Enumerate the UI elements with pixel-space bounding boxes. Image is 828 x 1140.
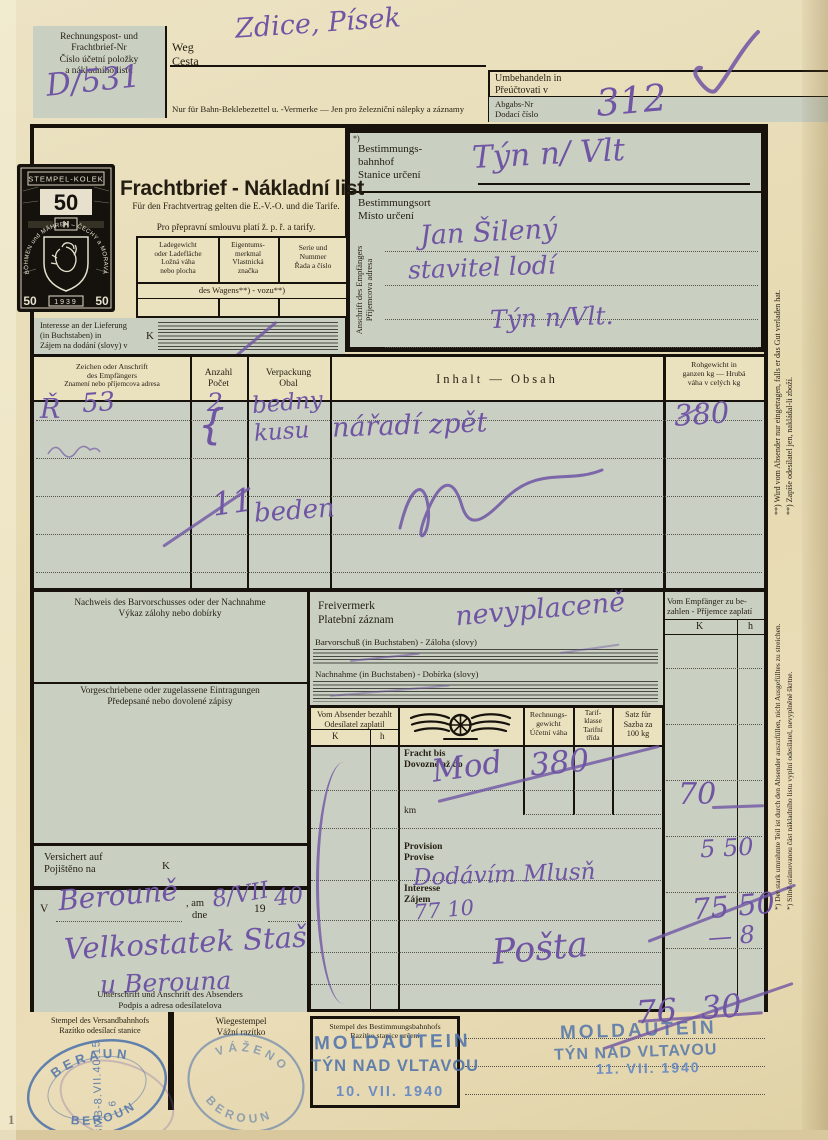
margin-footnote-upper: **) Wird vom Absender nur eingetragen, f… xyxy=(772,195,800,515)
zeichen-l1: Zeichen oder Anschrift xyxy=(36,362,188,371)
line xyxy=(663,634,764,635)
dotted-line xyxy=(385,347,758,348)
interesse-de1: Interesse an der Lieferung xyxy=(40,321,128,331)
consignee-label-cs: Příjemcova adresa xyxy=(364,229,374,351)
pay-h-header: h xyxy=(380,731,385,742)
moldautein-stamp2-date: 11. VII. 1940 xyxy=(596,1059,701,1077)
destination-block: *) Bestimmungs- bahnhof Stanice určení T… xyxy=(345,128,766,352)
weighing-stamp-top-text: VÁŽENO xyxy=(211,1031,296,1076)
goods-brace-handwritten: { xyxy=(198,404,225,446)
frei-de: Freivermerk xyxy=(318,600,394,614)
tk1: Tarif- xyxy=(574,709,612,717)
advance-proof-box-label: Nachweis des Barvorschusses oder der Nac… xyxy=(36,598,304,620)
footnote2-de: *) Der stark umrahmte Teil ist durch den… xyxy=(772,510,784,910)
dotted-line xyxy=(311,984,661,985)
charges-note-handwritten: Dodávím Mlusň xyxy=(413,861,596,890)
provision-label: Provision Provise xyxy=(404,842,442,864)
wagon-c1d: nebo plocha xyxy=(140,267,216,276)
interesse-currency-k: K xyxy=(146,330,154,343)
total-76-30-handwritten: 76 30 xyxy=(635,989,743,1028)
bahn-note: Nur für Bahn-Beklebezettel u. -Vermerke … xyxy=(172,104,464,114)
goods-content-handwritten: nářadí zpět xyxy=(332,409,488,441)
nachnahme-label: Nachnahme (in Buchstaben) - Dobírka (slo… xyxy=(315,669,478,679)
form-title: Frachtbrief - Nákladní list xyxy=(120,177,352,202)
revenue-stamp-50h: STEMPEL-KOLEK 50 H BÖHMEN und MÄHREN – Č… xyxy=(16,163,116,313)
goods-pack1-handwritten: bedny xyxy=(251,389,324,418)
rg2: gewicht xyxy=(524,719,573,728)
line xyxy=(30,843,307,846)
dotted-line xyxy=(385,251,758,252)
dateline-year-handwritten: 40 xyxy=(273,885,305,911)
interesse-label: Interesse an der Lieferung (in Buchstabe… xyxy=(40,321,128,350)
line xyxy=(218,298,220,316)
nachweis-de: Nachweis des Barvorschusses oder der Nac… xyxy=(36,598,304,609)
destination-station-handwritten: Týn n/ Vlt xyxy=(471,135,625,174)
tk3: Tarifní xyxy=(574,726,612,734)
consignee-occupation-handwritten: stavitel lodí xyxy=(408,252,557,282)
sender-signature-label: Unterschrift und Anschrift des Absenders… xyxy=(50,989,290,1010)
interesse-de2: (in Buchstaben) in xyxy=(40,331,128,341)
line xyxy=(311,729,398,730)
umbehandeln-label-cs: Přeúčtovati v xyxy=(495,85,561,97)
content-scrawl-handwriting xyxy=(392,458,622,558)
wagon-row-label: des Wagens**) - vozu**) xyxy=(138,285,346,295)
zeichen-l2: des Empfängers xyxy=(36,371,188,380)
best-de: Stempel des Bestimmungsbahnhofs xyxy=(313,1022,457,1031)
posta-handwritten: Pošta xyxy=(491,928,590,971)
line xyxy=(247,357,249,588)
roh-l2: ganzen kg — Hrubá xyxy=(666,369,762,378)
umbehandeln-label: Umbehandeln in Přeúčtovati v xyxy=(495,73,561,97)
rg1: Rechnungs- xyxy=(524,710,573,719)
line xyxy=(488,70,828,72)
consignee-name-handwritten: Jan Šilený xyxy=(419,215,558,249)
insured-label: Versichert auf Pojištěno na xyxy=(44,852,103,877)
line xyxy=(663,619,764,620)
verpackung-de: Verpackung xyxy=(248,368,329,379)
billnr-label-de2: Frachtbrief-Nr xyxy=(33,43,165,54)
form-subtitle-cs: Pro přepravní smlouvu platí ž. p. ř. a t… xyxy=(122,222,350,233)
stamp-value-text: 50 xyxy=(54,190,78,215)
dateline-am: , am xyxy=(186,898,207,910)
dotted-line xyxy=(311,952,661,953)
dateline-19: 19 xyxy=(254,903,266,917)
paper-bottom-edge xyxy=(0,1130,828,1140)
line xyxy=(138,298,346,299)
dotted-line xyxy=(56,921,182,922)
destination-place-label: Bestimmungsort Místo určení xyxy=(358,197,431,223)
moldautein-stamp-line2: TÝN NAD VLTAVOU xyxy=(311,1057,479,1076)
signature-label-cs: Podpis a adresa odesílatelova xyxy=(50,1000,290,1011)
wagon-c2d: značka xyxy=(220,267,276,276)
goods-col-rohgewicht-header: Rohgewicht in ganzen kg — Hrubá váha v c… xyxy=(666,360,762,388)
checkmark-handwritten-icon xyxy=(688,28,768,106)
km-label: km xyxy=(404,806,416,817)
empf-l2: zahlen - Příjemce zaplatí xyxy=(667,606,764,616)
dotted-line xyxy=(666,668,762,669)
dest-label-de2: bahnhof xyxy=(358,156,422,169)
consignee-pays-label: Vom Empfänger zu be- zahlen - Příjemce z… xyxy=(667,596,764,616)
margin-footnote-lower: *) Der stark umrahmte Teil ist durch den… xyxy=(772,510,800,910)
footnote2-cs: *) Silně orámovanou část nákladního list… xyxy=(784,510,796,910)
s1: Satz für xyxy=(613,710,663,720)
paper-left-edge xyxy=(0,0,16,1140)
route-handwritten-value: Zdice, Písek xyxy=(234,4,401,43)
stamp-header-text: STEMPEL-KOLEK xyxy=(28,175,104,184)
line xyxy=(190,357,192,588)
stamp-corner-right: 50 xyxy=(95,294,109,308)
dateline-dne: dne xyxy=(186,910,207,922)
freivermerk-label: Freivermerk Platební záznam xyxy=(318,600,394,627)
paper-edge-shade xyxy=(802,0,828,1140)
abgabs-label-de: Abgabs-Nr xyxy=(495,99,538,109)
pencil-scribble xyxy=(46,440,102,462)
wagon-col2-header: Eigentums- merkmal Vlastnická značka xyxy=(220,241,276,275)
pay-abs1: Vom Absender bezahlt xyxy=(311,710,398,720)
nachweis-cs: Výkaz zálohy nebo dobírky xyxy=(36,609,304,620)
umbehandeln-label-de: Umbehandeln in xyxy=(495,73,561,85)
roh-l3: váha v celých kg xyxy=(666,378,762,387)
dotted-line xyxy=(36,572,762,573)
abgabs-handwritten-value: 312 xyxy=(595,79,669,122)
dateline-v: V xyxy=(40,903,48,917)
weg-underline xyxy=(170,65,486,67)
line xyxy=(350,191,761,193)
pay-k-header: K xyxy=(332,731,339,742)
line xyxy=(737,619,738,1012)
form-subtitle-de: Für den Frachtvertrag gelten die E.-V.-O… xyxy=(122,201,350,212)
prov1: Provision xyxy=(404,842,442,853)
consignee-label-de: Anschrift des Empfängers xyxy=(354,229,364,351)
insured-currency-k: K xyxy=(162,860,170,873)
signature-label-de: Unterschrift und Anschrift des Absenders xyxy=(50,989,290,1000)
amount-70-handwritten: 70 xyxy=(678,780,716,810)
stamp-year-text: 1939 xyxy=(54,299,78,306)
dateline-am-dne: , am dne xyxy=(186,898,207,923)
abgabs-label-cs: Dodací číslo xyxy=(495,109,538,119)
goods-pack2-handwritten: beden xyxy=(253,495,335,527)
goods-col-inhalt-header: Inhalt — Obsah xyxy=(332,372,662,387)
empf-h-header: h xyxy=(748,621,753,633)
roh-l1: Rohgewicht in xyxy=(666,360,762,369)
svg-text:VÁŽENO: VÁŽENO xyxy=(211,1031,296,1076)
wagon-col3-header: Serie und Nummer Řada a číslo xyxy=(280,244,346,271)
line xyxy=(478,183,750,185)
line xyxy=(138,282,346,284)
ort-label-de: Bestimmungsort xyxy=(358,197,431,210)
line xyxy=(398,705,400,1012)
billnr-label-de1: Rechnungspost- und xyxy=(33,32,165,43)
dotted-line xyxy=(666,724,762,725)
amount-minus-8-handwritten: — 8 xyxy=(707,922,755,949)
vorg-de: Vorgeschriebene oder zugelassene Eintrag… xyxy=(36,686,304,697)
goods-mark-handwritten: Ř xyxy=(40,396,60,423)
svg-text:BEROUN: BEROUN xyxy=(200,1091,278,1133)
footnote1-cs: **) Zapíše odesílatel jen, nakládal-li z… xyxy=(784,195,796,515)
dotted-line xyxy=(465,1094,765,1095)
goods-mark-number-handwritten: 53 xyxy=(81,389,116,417)
anzahl-de: Anzahl xyxy=(191,368,246,379)
dotted-line xyxy=(385,285,758,286)
empf-k-header: K xyxy=(696,621,703,633)
divider-line xyxy=(165,26,167,118)
line xyxy=(370,729,371,1012)
line xyxy=(663,357,666,588)
sender-paid-label: Vom Absender bezahlt Odesílatel zaplatil xyxy=(311,710,398,730)
weighing-stamp-bottom-text: BEROUN xyxy=(200,1091,278,1133)
footnote1-de: **) Wird vom Absender nur eingetragen, f… xyxy=(772,195,784,515)
moldautein-stamp-line1: MOLDAUTEIN xyxy=(314,1031,471,1056)
winged-wheel-railway-icon xyxy=(408,710,513,744)
abgabs-label: Abgabs-Nr Dodací číslo xyxy=(495,99,538,119)
prov2: Provise xyxy=(404,853,442,864)
line xyxy=(34,682,307,684)
dest-label-cs: Stanice určení xyxy=(358,169,422,182)
line xyxy=(330,357,332,588)
dotted-line xyxy=(311,828,661,829)
wagon-c3c: Řada a číslo xyxy=(280,262,346,271)
destination-station-label: Bestimmungs- bahnhof Stanice určení xyxy=(358,143,422,182)
goods-col-zeichen-header: Zeichen oder Anschrift des Empfängers Zn… xyxy=(36,362,188,389)
amount-5-50-handwritten: 5 50 xyxy=(699,835,754,862)
interesse-cs: Zájem na dodání (slovy) v xyxy=(40,341,128,351)
versichert-de: Versichert auf xyxy=(44,852,103,864)
freight-bill-document: Rechnungspost- und Frachtbrief-Nr Číslo … xyxy=(0,0,828,1140)
wagon-col1-header: Ladegewicht oder Ladefläche Ložná váha n… xyxy=(140,241,216,275)
rate-per-100kg-header: Satz für Sazba za 100 kg xyxy=(613,710,663,739)
account-weight-handwritten: 380 xyxy=(529,745,591,781)
goods-pack1b-handwritten: kusu xyxy=(253,419,310,446)
barvorschuss-label: Barvorschuß (in Buchstaben) - Záloha (sl… xyxy=(315,637,477,647)
consignee-address-label: Anschrift des Empfängers Příjemcova adre… xyxy=(354,229,380,351)
empf-l1: Vom Empfänger zu be- xyxy=(667,596,764,606)
moldautein-stamp-date1: 10. VII. 1940 xyxy=(336,1084,444,1100)
s3: 100 kg xyxy=(613,729,663,739)
stamp-corner-left: 50 xyxy=(23,294,37,308)
tariff-class-header: Tarif- klasse Tarifní třída xyxy=(574,709,612,742)
frei-cs: Platební záznam xyxy=(318,614,394,628)
dest-label-de1: Bestimmungs- xyxy=(358,143,422,156)
versichert-cs: Pojištěno na xyxy=(44,864,103,876)
tk2: klasse xyxy=(574,717,612,725)
dotted-line xyxy=(524,814,661,815)
line xyxy=(278,298,280,316)
dotted-line xyxy=(311,920,661,921)
rg3: Účetní váha xyxy=(524,728,573,737)
line xyxy=(34,400,764,402)
wagon-table: Ladegewicht oder Ladefläche Ložná váha n… xyxy=(136,236,348,318)
consignee-town-handwritten: Týn n/Vlt. xyxy=(490,303,614,332)
weg-label-de: Weg xyxy=(172,40,199,54)
tk4: třída xyxy=(574,734,612,742)
account-weight-header: Rechnungs- gewicht Účetní váha xyxy=(524,710,573,738)
charges-sum-handwritten: 77 10 xyxy=(413,897,475,923)
s2: Sazba za xyxy=(613,720,663,730)
vorg-cs: Předepsané nebo dovolené zápisy xyxy=(36,697,304,708)
prescribed-entries-box-label: Vorgeschriebene oder zugelassene Eintrag… xyxy=(36,686,304,708)
